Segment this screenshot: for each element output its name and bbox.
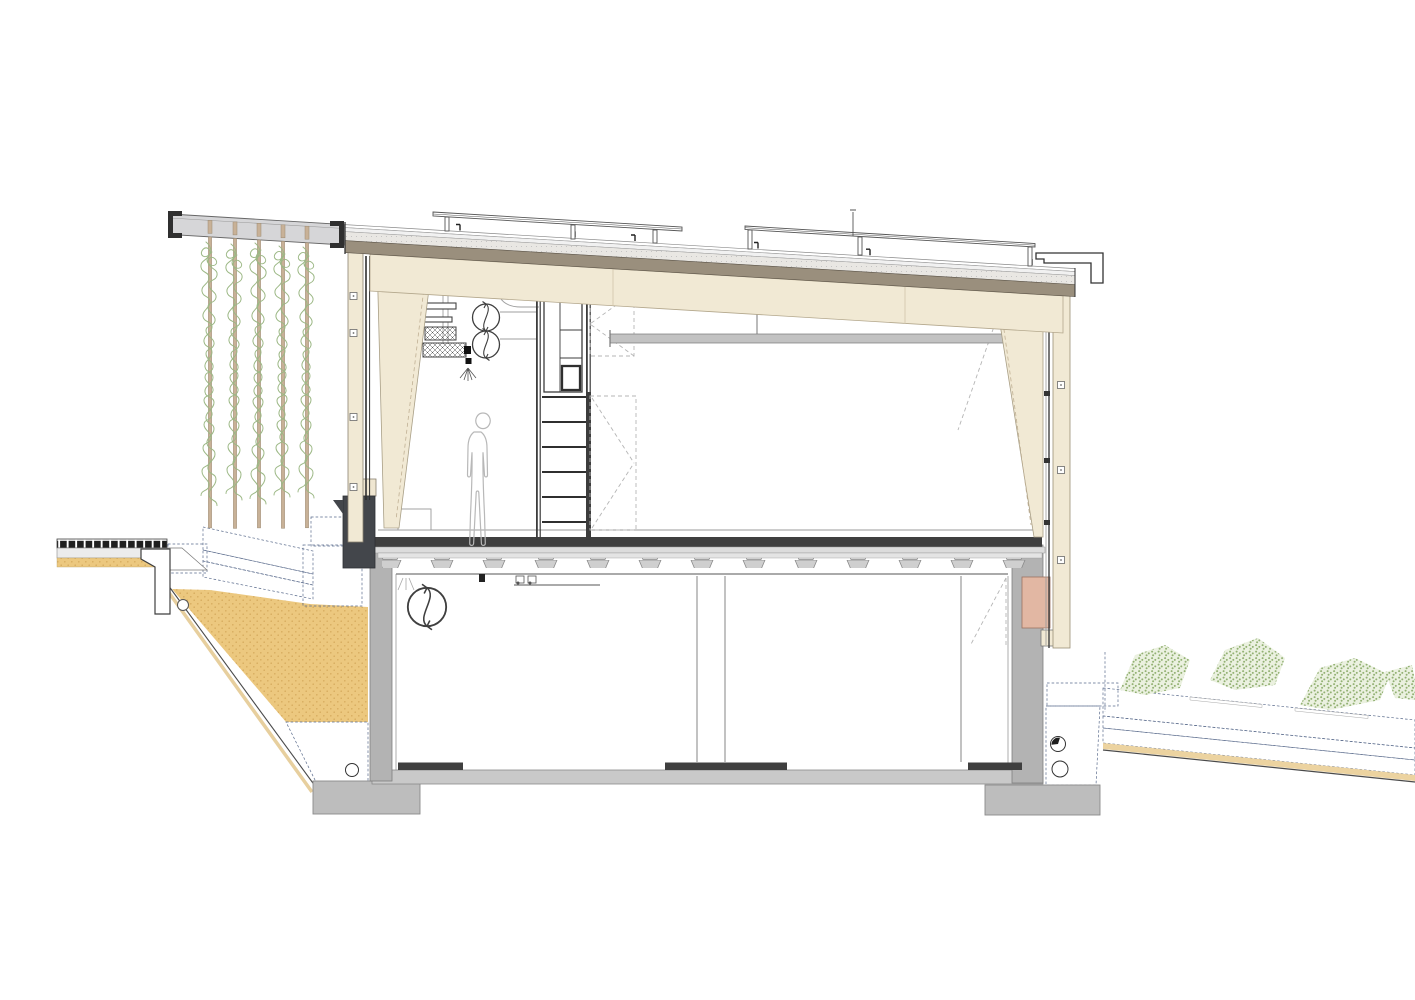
architectural-section-drawing	[0, 0, 1415, 1000]
glazing	[366, 256, 370, 500]
shaft-opening	[562, 366, 580, 390]
ribbed-slab-teeth	[382, 558, 1040, 568]
drain-pipes-right	[1050, 737, 1068, 778]
wall-fixing	[350, 414, 357, 421]
ceiling-beam	[610, 334, 1003, 343]
tan-base-layer	[1103, 743, 1415, 781]
human-figure	[468, 413, 491, 545]
roof-assembly	[345, 210, 1103, 333]
rubble-stones-right	[1047, 683, 1118, 706]
planter-bed	[203, 527, 313, 599]
pergola-canopy	[168, 211, 344, 528]
drain-pipe	[346, 764, 359, 777]
control-box	[464, 346, 471, 354]
left-footing	[313, 781, 420, 814]
light-fixture	[460, 358, 476, 381]
floor-strip	[968, 763, 1022, 771]
cabinet-shaft	[536, 264, 591, 540]
tapered-column-right	[996, 299, 1043, 537]
sand-layer	[203, 550, 313, 585]
floor-strip	[665, 763, 787, 771]
tapered-column-left	[377, 256, 433, 528]
cladding-fixing	[1058, 467, 1065, 474]
vegetation-clusters	[1120, 638, 1415, 710]
cladding-fixing	[1058, 557, 1065, 564]
cladding-fixing	[1058, 382, 1065, 389]
convector-unit	[398, 509, 431, 530]
floor-slab-assembly	[333, 479, 1058, 646]
terrain-left	[57, 517, 368, 792]
ventilation-fan-lower	[473, 329, 500, 361]
concrete-retaining-wall	[141, 549, 170, 614]
shrub-cluster	[1210, 638, 1285, 690]
paver-strip	[57, 539, 167, 548]
terrain-right	[1046, 638, 1415, 785]
shrub-cluster	[1300, 658, 1390, 710]
screed-band	[363, 547, 1045, 553]
sand-fill	[172, 589, 368, 722]
ventilation-fan-upper	[473, 302, 500, 334]
stair	[542, 392, 591, 540]
ground-bottom-line	[1103, 750, 1415, 782]
section-svg	[0, 0, 1415, 1000]
basement-fan	[408, 584, 446, 629]
floor-strip	[398, 763, 463, 771]
basement-floor-slab	[372, 770, 1043, 784]
planting-soil-layer	[203, 527, 313, 574]
basement-wall-left	[370, 545, 392, 781]
wall-fixing	[350, 484, 357, 491]
equipment-shelves	[423, 303, 476, 381]
left-walkway	[57, 539, 207, 570]
wall-fixing	[350, 293, 357, 300]
walkway-step	[167, 548, 207, 570]
basement-door-swing	[970, 578, 1006, 646]
trellis-posts	[208, 220, 309, 528]
shrub-cluster	[1120, 645, 1190, 695]
drainage-gravel-bottom	[286, 722, 368, 786]
wall-fixing	[350, 330, 357, 337]
floor-finish-dark	[363, 537, 1042, 547]
foundations	[313, 545, 1100, 815]
drain-pipe-planter	[178, 600, 189, 611]
slab-flange	[378, 553, 1042, 558]
shrub-cluster	[1385, 665, 1415, 700]
door-swings	[590, 292, 998, 530]
right-footing	[985, 785, 1100, 815]
surface-path-strip	[1190, 697, 1262, 708]
basement-interior	[396, 574, 1022, 770]
